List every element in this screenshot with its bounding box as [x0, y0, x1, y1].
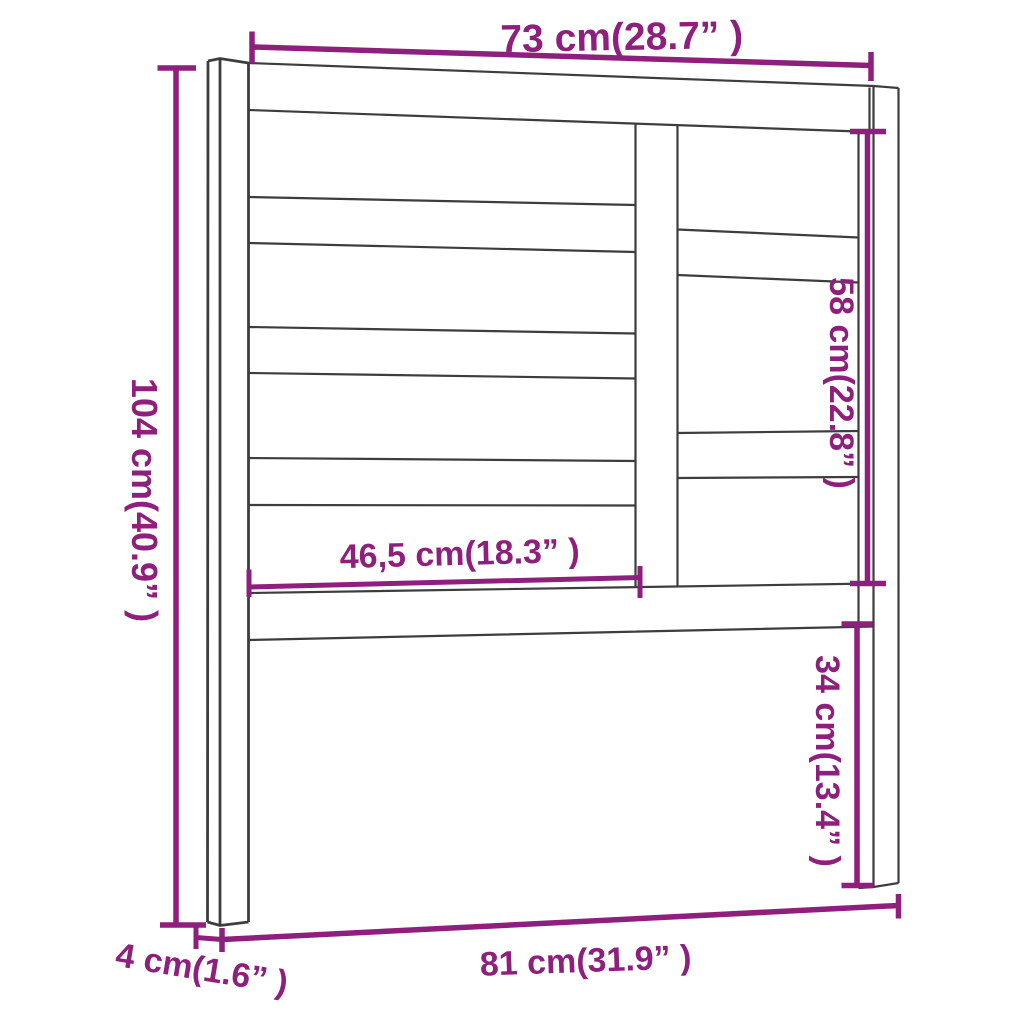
headboard-dimension-drawing: 73 cm(28.7” ) 104 cm(40.9” ) 46,5 cm(18.…: [0, 0, 1024, 1024]
dimension-label-top-width: 73 cm(28.7” ): [500, 14, 744, 61]
dimension-label-inner-width: 46,5 cm(18.3” ): [339, 532, 580, 576]
dimension-lines: [158, 32, 899, 953]
dimension-label-bottom-width: 81 cm(31.9” ): [479, 938, 692, 983]
right-post-outline: [859, 86, 899, 888]
dimension-line: [249, 578, 640, 588]
dimension-label-right-section-height: 58 cm(22.8” ): [822, 277, 860, 489]
left-post-outline: [208, 59, 249, 926]
left-slats-outline: [249, 197, 636, 506]
top-rail-outline: [249, 63, 874, 132]
dimension-label-left-height: 104 cm(40.9” ): [124, 378, 165, 622]
dimension-label-depth: 4 cm(1.6” ): [113, 936, 291, 1002]
dimension-depth: [196, 927, 222, 949]
center-divider-outline: [636, 125, 678, 588]
product-dimension-diagram: 73 cm(28.7” ) 104 cm(40.9” ) 46,5 cm(18.…: [0, 0, 1024, 1024]
dimension-line: [222, 906, 899, 940]
dimension-line: [196, 938, 222, 940]
dimension-label-leg-height: 34 cm(13.4” ): [808, 655, 846, 867]
bottom-rail-outline: [249, 584, 874, 641]
headboard-outline: [208, 59, 899, 926]
dimension-labels: 73 cm(28.7” ) 104 cm(40.9” ) 46,5 cm(18.…: [113, 14, 860, 1002]
